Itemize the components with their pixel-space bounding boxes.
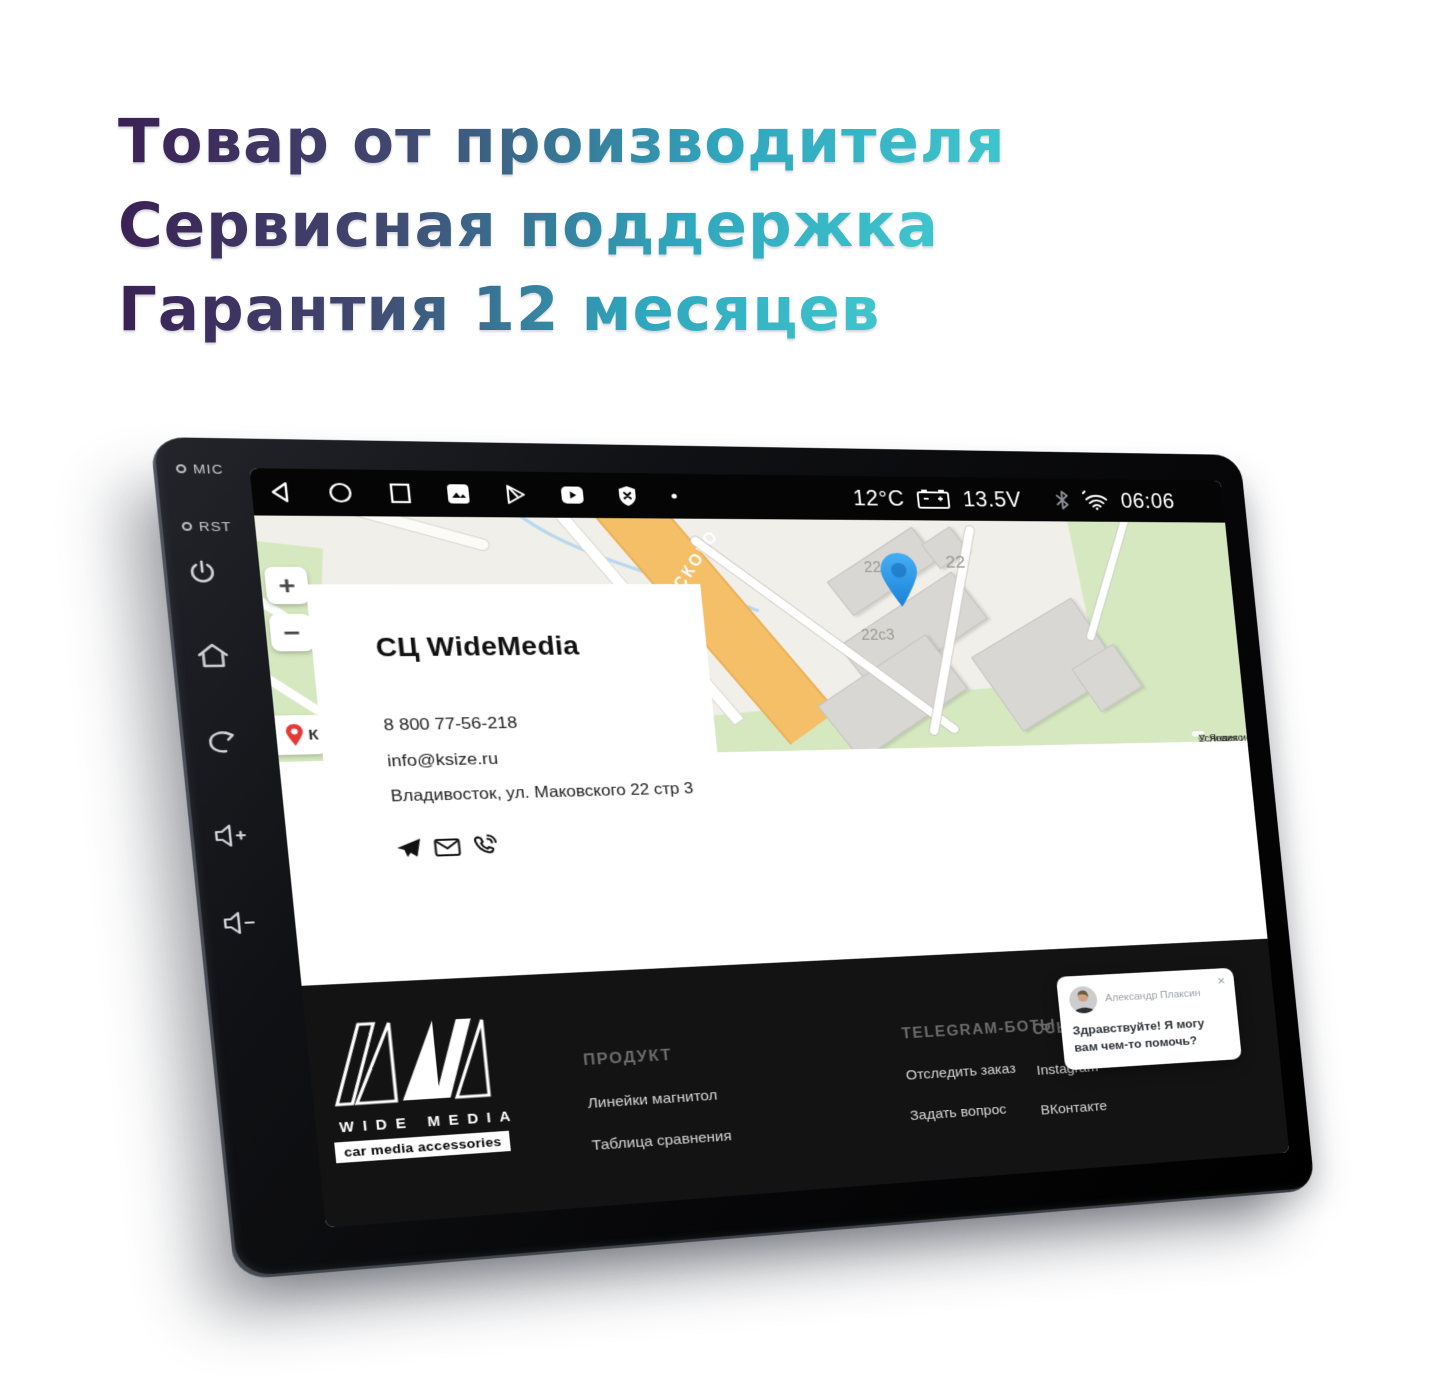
- contact-card: СЦ WideMedia 8 800 77-56-218 info@ksize.…: [306, 584, 738, 969]
- email-address: info@ksize.ru: [386, 745, 700, 771]
- footer-link[interactable]: Таблица сравнения: [591, 1128, 732, 1154]
- footer-link[interactable]: ВКонтакте: [1040, 1098, 1115, 1118]
- map-attribution: © Яндекс Условия использования: [1192, 731, 1205, 737]
- chat-widget: × Александр Плаксин Здравствуйте: [1056, 968, 1242, 1070]
- volume-up-button[interactable]: [212, 822, 249, 849]
- nav-icons: [266, 480, 679, 507]
- power-button[interactable]: [185, 559, 220, 587]
- footer-link[interactable]: Линейки магнитол: [587, 1087, 728, 1112]
- service-center-title: СЦ WideMedia: [374, 631, 690, 663]
- footer-heading: ПРОДУКТ: [582, 1044, 724, 1069]
- screen: 12°C 13.5V: [249, 468, 1289, 1227]
- headline-line-3: Гарантия 12 месяцев: [118, 268, 880, 352]
- reset-label: RST: [198, 519, 232, 534]
- car-battery-icon: [915, 488, 951, 510]
- placemark-label: К: [308, 726, 320, 743]
- headline-line-2: Сервисная поддержка: [118, 184, 939, 268]
- mic-button[interactable]: MIC: [175, 461, 224, 476]
- phone-call-icon[interactable]: [471, 834, 499, 858]
- power-icon: [185, 559, 220, 587]
- temperature-value: 12°C: [852, 486, 906, 511]
- volume-down-icon: [221, 909, 258, 936]
- phone-number: 8 800 77-56-218: [383, 711, 697, 736]
- back-button[interactable]: [202, 728, 241, 756]
- widemedia-logo: WIDE MEDIA car media accessories: [322, 1010, 500, 1163]
- shield-app-icon[interactable]: [616, 485, 639, 507]
- map-zoom-in-button[interactable]: +: [264, 567, 310, 604]
- chat-header: Александр Плаксин: [1068, 979, 1226, 1014]
- brand-tagline: car media accessories: [334, 1131, 511, 1164]
- operator-avatar: [1068, 986, 1098, 1014]
- bluetooth-icon: [1053, 489, 1071, 511]
- map-zoom-out-button[interactable]: −: [269, 614, 315, 652]
- back-arrow-icon: [202, 728, 241, 756]
- status-indicators: 12°C 13.5V: [852, 486, 1176, 513]
- reset-hole-icon: [181, 522, 192, 531]
- footer-column-product: ПРОДУКТ Линейки магнитол Таблица сравнен…: [582, 1044, 732, 1153]
- telegram-icon[interactable]: [395, 838, 423, 860]
- mic-label: MIC: [192, 461, 224, 476]
- wifi-icon: [1081, 490, 1110, 512]
- nav-back-icon[interactable]: [266, 480, 293, 504]
- operator-name: Александр Плаксин: [1105, 988, 1201, 1004]
- notification-dot-icon: [670, 492, 679, 500]
- volume-up-icon: [212, 822, 249, 849]
- brand-name: WIDE MEDIA: [339, 1109, 497, 1135]
- building-label: 22: [945, 553, 967, 573]
- building-label: 22с3: [860, 628, 895, 645]
- postal-address: Владивосток, ул. Маковского 22 стр 3: [390, 780, 704, 806]
- chat-close-icon[interactable]: ×: [1217, 974, 1226, 988]
- gallery-app-icon[interactable]: [445, 483, 471, 504]
- youtube-app-icon[interactable]: [559, 485, 585, 506]
- android-status-bar: 12°C 13.5V: [249, 468, 1225, 522]
- play-store-app-icon[interactable]: [503, 483, 528, 506]
- wm-logo-mark: [322, 1010, 494, 1109]
- map-pin-icon: [876, 551, 924, 609]
- contact-icons: [395, 828, 709, 861]
- page: Товар от производителя Сервисная поддерж…: [0, 0, 1438, 1400]
- home-icon: [193, 641, 232, 671]
- device-bezel: MIC RST: [150, 437, 1315, 1280]
- red-pin-icon: [284, 723, 305, 747]
- headline: Товар от производителя Сервисная поддерж…: [118, 100, 1006, 352]
- headline-line-1: Товар от производителя: [118, 100, 1006, 184]
- reset-button[interactable]: RST: [181, 519, 232, 534]
- voltage-value: 13.5V: [962, 487, 1023, 512]
- clock-value: 06:06: [1119, 489, 1175, 513]
- nav-recents-icon[interactable]: [387, 482, 413, 505]
- nav-home-icon[interactable]: [326, 481, 355, 505]
- chat-message: Здравствуйте! Я могу вам чем-то помочь?: [1072, 1014, 1230, 1057]
- volume-down-button[interactable]: [221, 909, 258, 936]
- mic-hole-icon: [176, 464, 187, 473]
- home-button[interactable]: [193, 641, 232, 671]
- car-head-unit-device: MIC RST: [150, 437, 1315, 1280]
- email-icon[interactable]: [433, 837, 462, 857]
